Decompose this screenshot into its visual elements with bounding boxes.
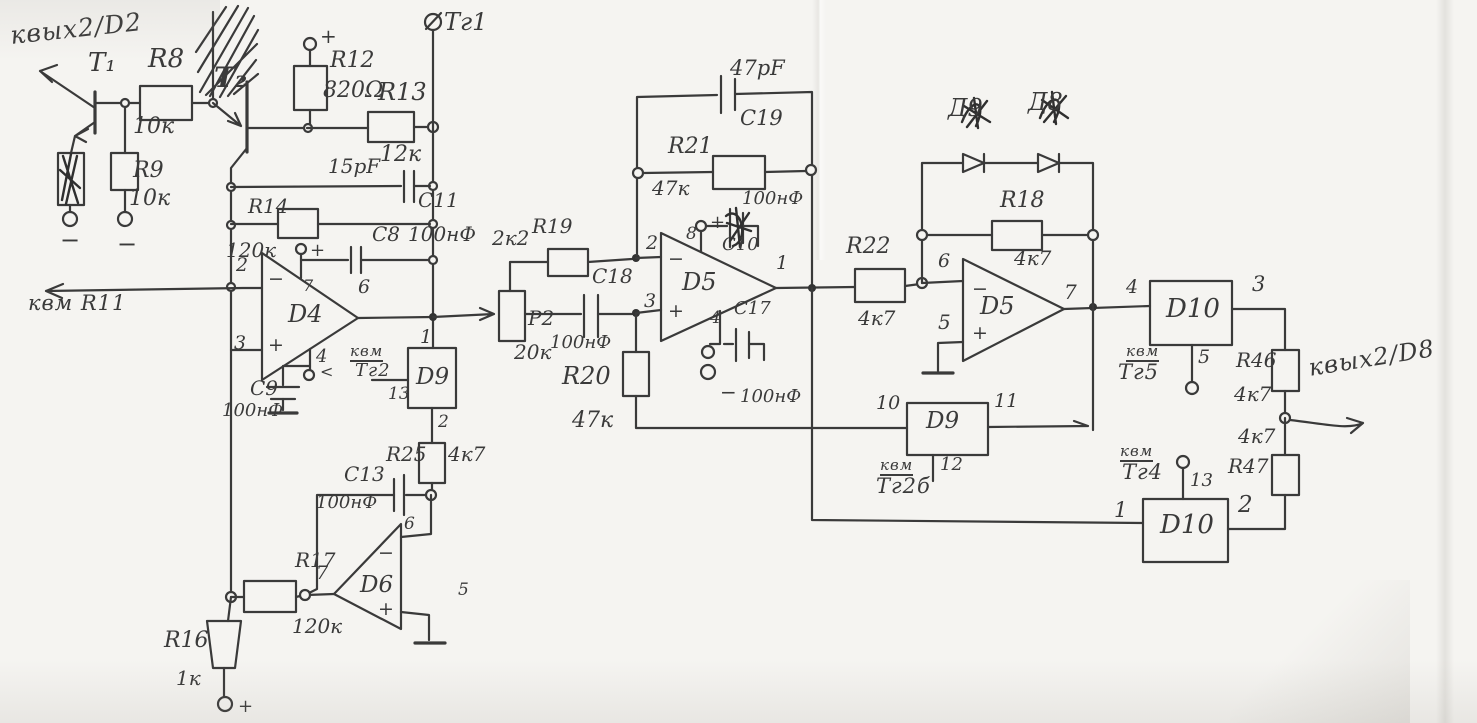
label-c11-value: 15pF — [328, 156, 380, 176]
label-r8-value: 10к — [133, 116, 174, 138]
label-r12-name: R12 — [330, 50, 375, 72]
label-r9-value: 10к — [129, 188, 170, 210]
label-c11-name: C11 — [418, 190, 459, 210]
label-d5a-pin2: 2 — [646, 234, 658, 253]
label-diode-d9: Д9 — [948, 96, 983, 120]
label-r21-value: 47к — [652, 178, 689, 198]
resistor-scribbled-symbol — [58, 153, 84, 226]
label-r8-name: R8 — [148, 46, 184, 72]
opamp-d5b-symbol — [923, 259, 1150, 373]
label-d4-pin7: 7 — [303, 278, 313, 294]
label-d5a-pin8: 8 — [686, 226, 697, 243]
label-r12-value: 820Ω — [323, 80, 383, 102]
label-r47-name: R47 — [1228, 456, 1269, 476]
label-d10a-pin3: 3 — [1252, 274, 1265, 295]
label-minus-terminal-1: − — [60, 228, 80, 252]
label-d9b-name: D9 — [926, 410, 959, 433]
resistor-r17-symbol — [226, 581, 300, 612]
label-d6-pin6: 6 — [404, 516, 415, 533]
resistor-r16-symbol — [207, 597, 241, 711]
label-d4-plus: + — [268, 336, 284, 355]
label-r46-name: R46 — [1236, 350, 1277, 370]
label-c13-value: 100нФ — [316, 494, 377, 512]
label-c8-name: C8 — [372, 224, 400, 244]
label-diode-d8: Д8 — [1028, 90, 1063, 114]
resistor-r13-symbol — [307, 112, 438, 142]
label-r22-value: 4к7 — [858, 308, 895, 328]
label-d6-plus: + — [378, 600, 394, 619]
label-d5b-plus: + — [972, 324, 988, 343]
label-tick-mark: < — [320, 364, 333, 380]
scanned-schematic-page: квых2/D2 квм R11 квых2/D8 Тг1 T₁ T₂ R8 1… — [0, 0, 1477, 723]
label-p2-name: P2 — [528, 308, 554, 328]
label-d10b-name: D10 — [1160, 512, 1214, 538]
label-d6-pin5: 5 — [458, 582, 469, 599]
label-c10-value: 100нФ — [742, 190, 803, 208]
label-c9-name: C9 — [250, 378, 278, 398]
label-c9-value: 100нФ — [222, 402, 283, 420]
potentiometer-p2-symbol — [499, 291, 525, 341]
label-d5a-pin4: 4 — [710, 310, 721, 327]
terminal-tg1-symbol — [425, 13, 441, 348]
label-r14-value: 120к — [226, 240, 276, 260]
label-r16-value: 1к — [176, 668, 201, 688]
resistor-r22-symbol — [855, 269, 963, 302]
transistor-t2-symbol — [213, 82, 307, 597]
label-t1: T₁ — [88, 50, 116, 76]
label-c13-name: C13 — [344, 464, 385, 484]
label-ref-tg4-line2: Тг4 — [1122, 462, 1163, 483]
label-r25-name: R25 — [386, 444, 427, 464]
label-r20-name: R20 — [562, 364, 611, 388]
label-d9b-pin10: 10 — [876, 394, 900, 413]
label-d5a-pin3: 3 — [644, 292, 656, 311]
resistor-r20-symbol — [623, 313, 907, 428]
label-oplus-bottom: + — [238, 698, 253, 716]
label-c17-value: 100нФ — [740, 388, 801, 406]
label-ref-tg5-line2: Тг5 — [1118, 362, 1159, 383]
label-d4-name: D4 — [288, 302, 323, 326]
label-d10b-pin13: 13 — [1190, 472, 1213, 490]
label-r46-value: 4к7 — [1234, 384, 1271, 404]
label-t2: T₂ — [214, 64, 247, 92]
label-d5a-pin1: 1 — [776, 254, 788, 273]
label-r9-name: R9 — [133, 160, 164, 182]
label-d9a-pin1: 1 — [420, 328, 432, 347]
label-c10-name: C10 — [722, 236, 759, 254]
label-tg1: Тг1 — [444, 10, 487, 34]
label-r17-value: 120к — [292, 616, 342, 636]
label-c18-value: 100нФ — [550, 334, 611, 352]
label-c8-value: 100нФ — [408, 224, 476, 244]
label-r47-value: 4к7 — [1238, 426, 1275, 446]
resistor-r18-symbol — [917, 221, 1098, 250]
label-ref-tg2b-line2: Тг2б — [876, 476, 931, 497]
label-d9b-pin11: 11 — [994, 392, 1018, 411]
wire-d4-output — [358, 308, 494, 321]
label-d5b-pin5: 5 — [938, 312, 951, 332]
label-d4-minus: − — [268, 270, 284, 289]
label-d6-minus: − — [378, 544, 394, 563]
label-c19-value: 47pF — [730, 58, 785, 79]
label-minus-terminal-2: − — [117, 232, 137, 256]
label-c18-name: C18 — [592, 266, 633, 286]
label-d5b-name: D5 — [980, 294, 1015, 318]
output-arrow — [1290, 418, 1363, 433]
label-r13-name: R13 — [378, 80, 427, 104]
label-d4-pin3: 3 — [234, 334, 246, 353]
label-d9a-pin2: 2 — [438, 414, 449, 431]
label-r25-value: 4к7 — [448, 444, 485, 464]
label-d10b-pin1: 1 — [1114, 500, 1127, 521]
label-d4-pin6: 6 — [358, 278, 370, 297]
label-d10b-pin2: 2 — [1238, 494, 1253, 517]
label-to-r11: квм R11 — [28, 293, 126, 314]
label-d5a-plus: + — [668, 302, 684, 321]
label-r14-name: R14 — [248, 196, 289, 216]
label-r19-value: 2к2 — [492, 228, 529, 248]
label-d4-pin2: 2 — [236, 256, 248, 275]
label-plus-r12: + — [320, 26, 337, 46]
label-d10a-pin4: 4 — [1126, 278, 1138, 297]
label-d5b-pin6: 6 — [938, 252, 950, 271]
resistor-r19-symbol — [510, 249, 661, 291]
label-minus-d5a-supply: − — [720, 382, 737, 402]
label-r13-value: 12к — [380, 144, 421, 166]
label-p2-value: 20к — [514, 342, 551, 362]
label-d5a-minus: − — [668, 250, 684, 269]
label-plus-d4-supply: + — [310, 242, 325, 260]
label-ref-tg2-line2: Тг2 — [355, 362, 391, 380]
label-d9a-pin13: 13 — [388, 386, 410, 403]
label-r16-name: R16 — [164, 630, 209, 652]
label-r17-name: R17 — [295, 550, 336, 570]
label-d6-name: D6 — [360, 574, 393, 597]
label-r18-name: R18 — [1000, 190, 1045, 212]
label-d9b-pin12: 12 — [940, 456, 963, 474]
label-r20-value: 47к — [572, 410, 613, 432]
label-c17-name: C17 — [734, 300, 771, 318]
label-d5a-name: D5 — [682, 270, 717, 294]
label-plus-d5a-supply: + — [710, 214, 725, 232]
label-r18-value: 4к7 — [1014, 248, 1051, 268]
label-r21-name: R21 — [668, 136, 713, 158]
label-d9a-name: D9 — [416, 366, 449, 389]
label-d10a-pin5: 5 — [1198, 348, 1210, 367]
label-r22-name: R22 — [846, 236, 891, 258]
label-c19-name: C19 — [740, 108, 783, 129]
label-d5b-pin7: 7 — [1064, 282, 1077, 302]
label-r19-name: R19 — [532, 216, 573, 236]
label-d10a-name: D10 — [1166, 296, 1220, 322]
